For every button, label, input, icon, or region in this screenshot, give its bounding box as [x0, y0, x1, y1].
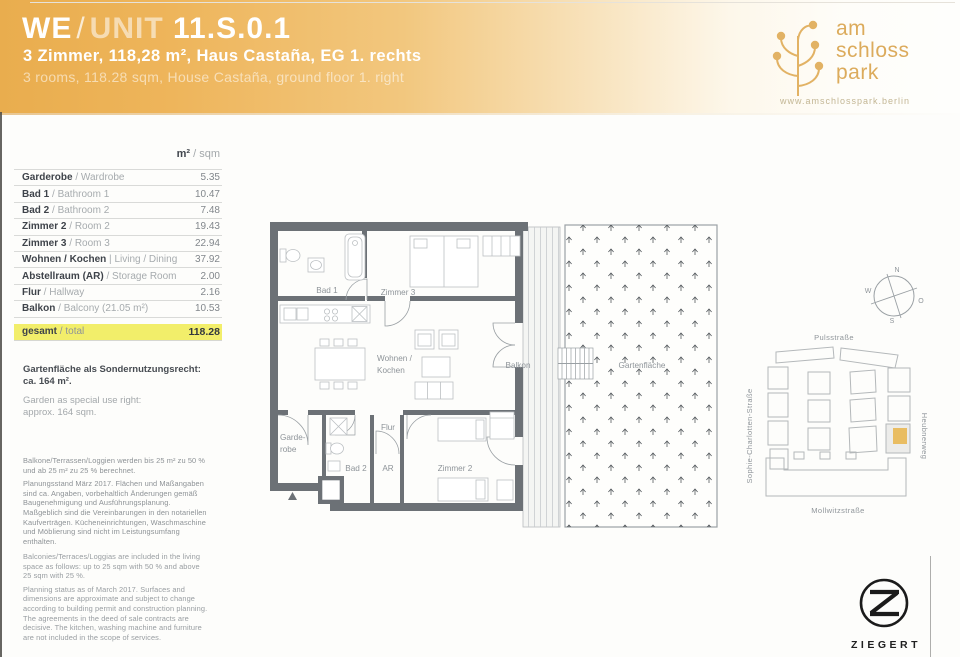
title-unit-number: 11.S.0.1: [173, 12, 291, 45]
garden-note-german: Gartenfläche als Sondernutzungsrecht: ca…: [23, 364, 218, 388]
disclaimer-english: Balconies/Terraces/Loggias are included …: [23, 552, 209, 646]
unit-en: sqm: [199, 148, 220, 160]
ziegert-wordmark: ZIEGERT: [842, 639, 927, 651]
scan-top-line: [30, 2, 955, 3]
bathroom1-fixtures: [280, 234, 365, 280]
ziegert-logo: ZIEGERT: [842, 572, 927, 651]
table-row: Garderobe / Wardrobe5.35: [14, 170, 222, 186]
room-label-flur: Flur: [381, 423, 395, 432]
logo-line-1: am: [836, 18, 910, 40]
logo-wordmark: am schloss park: [836, 18, 910, 84]
street-left: Sophie-Charlotten-Straße: [745, 388, 754, 483]
unit-de: m²: [177, 148, 190, 160]
compass-n: N: [894, 267, 899, 274]
logo-line-3: park: [836, 62, 910, 84]
room-label-garten: Gartenfläche: [619, 361, 666, 370]
area-table-header: m² / sqm: [14, 148, 222, 170]
balcony-area: [523, 227, 560, 527]
floorplan-drawing: Bad 1 Zimmer 3 Wohnen / Kochen Garde- ro…: [270, 222, 718, 530]
garden-note: Gartenfläche als Sondernutzungsrecht: ca…: [23, 364, 218, 419]
room-label-bad2: Bad 2: [345, 464, 367, 473]
street-bottom: Mollwitzstraße: [811, 506, 865, 515]
room-label-garderobe-2: robe: [280, 445, 297, 454]
logo-line-2: schloss: [836, 40, 910, 62]
room-label-garderobe-1: Garde-: [280, 433, 306, 442]
logo-website: www.amschlosspark.berlin: [745, 96, 945, 106]
street-top: Pulsstraße: [814, 333, 854, 342]
title-separator: /: [72, 12, 89, 45]
room-label-zimmer2: Zimmer 2: [438, 464, 473, 473]
room-label-wohnen-2: Kochen: [377, 366, 405, 375]
table-row: Zimmer 2 / Room 219.43: [14, 219, 222, 235]
compass-rose: N W O S: [858, 256, 934, 332]
table-row: Bad 2 / Bathroom 27.48: [14, 203, 222, 219]
site-map-unit-highlight: [893, 428, 907, 444]
tree-ornament-icon: [770, 10, 826, 98]
compass-w: W: [865, 288, 872, 295]
site-map: Pulsstraße Mollwitzstraße Sophie-Charlot…: [738, 328, 943, 528]
subtitle-german: 3 Zimmer, 118,28 m², Haus Castaña, EG 1.…: [23, 47, 422, 66]
table-row: Flur / Hallway2.16: [14, 285, 222, 301]
table-total-row: gesamt / total118.28: [14, 324, 222, 341]
room-label-zimmer3: Zimmer 3: [381, 288, 416, 297]
room2-furniture: [438, 412, 514, 501]
table-row: Wohnen / Kochen | Living / Dining37.92: [14, 252, 222, 268]
area-table: m² / sqm Garderobe / Wardrobe5.35 Bad 1 …: [14, 148, 222, 341]
am-schlosspark-logo: am schloss park: [770, 10, 940, 98]
room-label-bad1: Bad 1: [316, 286, 338, 295]
garden-note-english: Garden as special use right: approx. 164…: [23, 395, 218, 419]
compass-o: O: [918, 298, 924, 305]
table-row: Abstellraum (AR) / Storage Room2.00: [14, 268, 222, 284]
disclaimer-german: Balkone/Terrassen/Loggien werden bis 25 …: [23, 456, 209, 550]
ziegert-z-icon: [842, 572, 927, 632]
compass-s: S: [890, 318, 895, 325]
unit-title: WE/UNIT 11.S.0.1: [22, 12, 291, 46]
title-we: WE: [22, 12, 72, 45]
header-band-edge: [0, 113, 960, 115]
subtitle-english: 3 rooms, 118.28 sqm, House Castaña, grou…: [23, 69, 404, 85]
room-label-ar: AR: [382, 464, 393, 473]
room-label-balkon: Balkon: [505, 361, 530, 370]
title-unit-word: UNIT: [90, 12, 164, 45]
disclaimer-en-p1: Balconies/Terraces/Loggias are included …: [23, 552, 209, 581]
document-page: WE/UNIT 11.S.0.1 3 Zimmer, 118,28 m², Ha…: [0, 0, 960, 657]
room-label-wohnen-1: Wohnen /: [377, 354, 413, 363]
kitchen-counter: [280, 305, 370, 323]
shaft: [322, 480, 340, 500]
scan-right-fold-line: [930, 556, 931, 657]
garden-stairs: [558, 348, 593, 379]
scan-left-edge: [0, 112, 2, 657]
room3-furniture: [410, 236, 520, 287]
bathroom2-fixtures: [326, 418, 347, 471]
total-value: 118.28: [188, 326, 220, 338]
disclaimer-de-p2: Planungsstand März 2017. Flächen und Maß…: [23, 479, 209, 546]
living-furniture: [315, 330, 458, 399]
table-row: Zimmer 3 / Room 322.94: [14, 236, 222, 252]
table-row: Bad 1 / Bathroom 110.47: [14, 186, 222, 202]
disclaimer-de-p1: Balkone/Terrassen/Loggien werden bis 25 …: [23, 456, 209, 475]
entrance-arrow: [288, 492, 297, 500]
street-right: Heubnerweg: [920, 413, 929, 460]
table-row: Balkon / Balcony (21.05 m²)10.53: [14, 301, 222, 317]
site-map-buildings: [766, 347, 910, 496]
disclaimer-en-p2: Planning status as of March 2017. Surfac…: [23, 585, 209, 643]
